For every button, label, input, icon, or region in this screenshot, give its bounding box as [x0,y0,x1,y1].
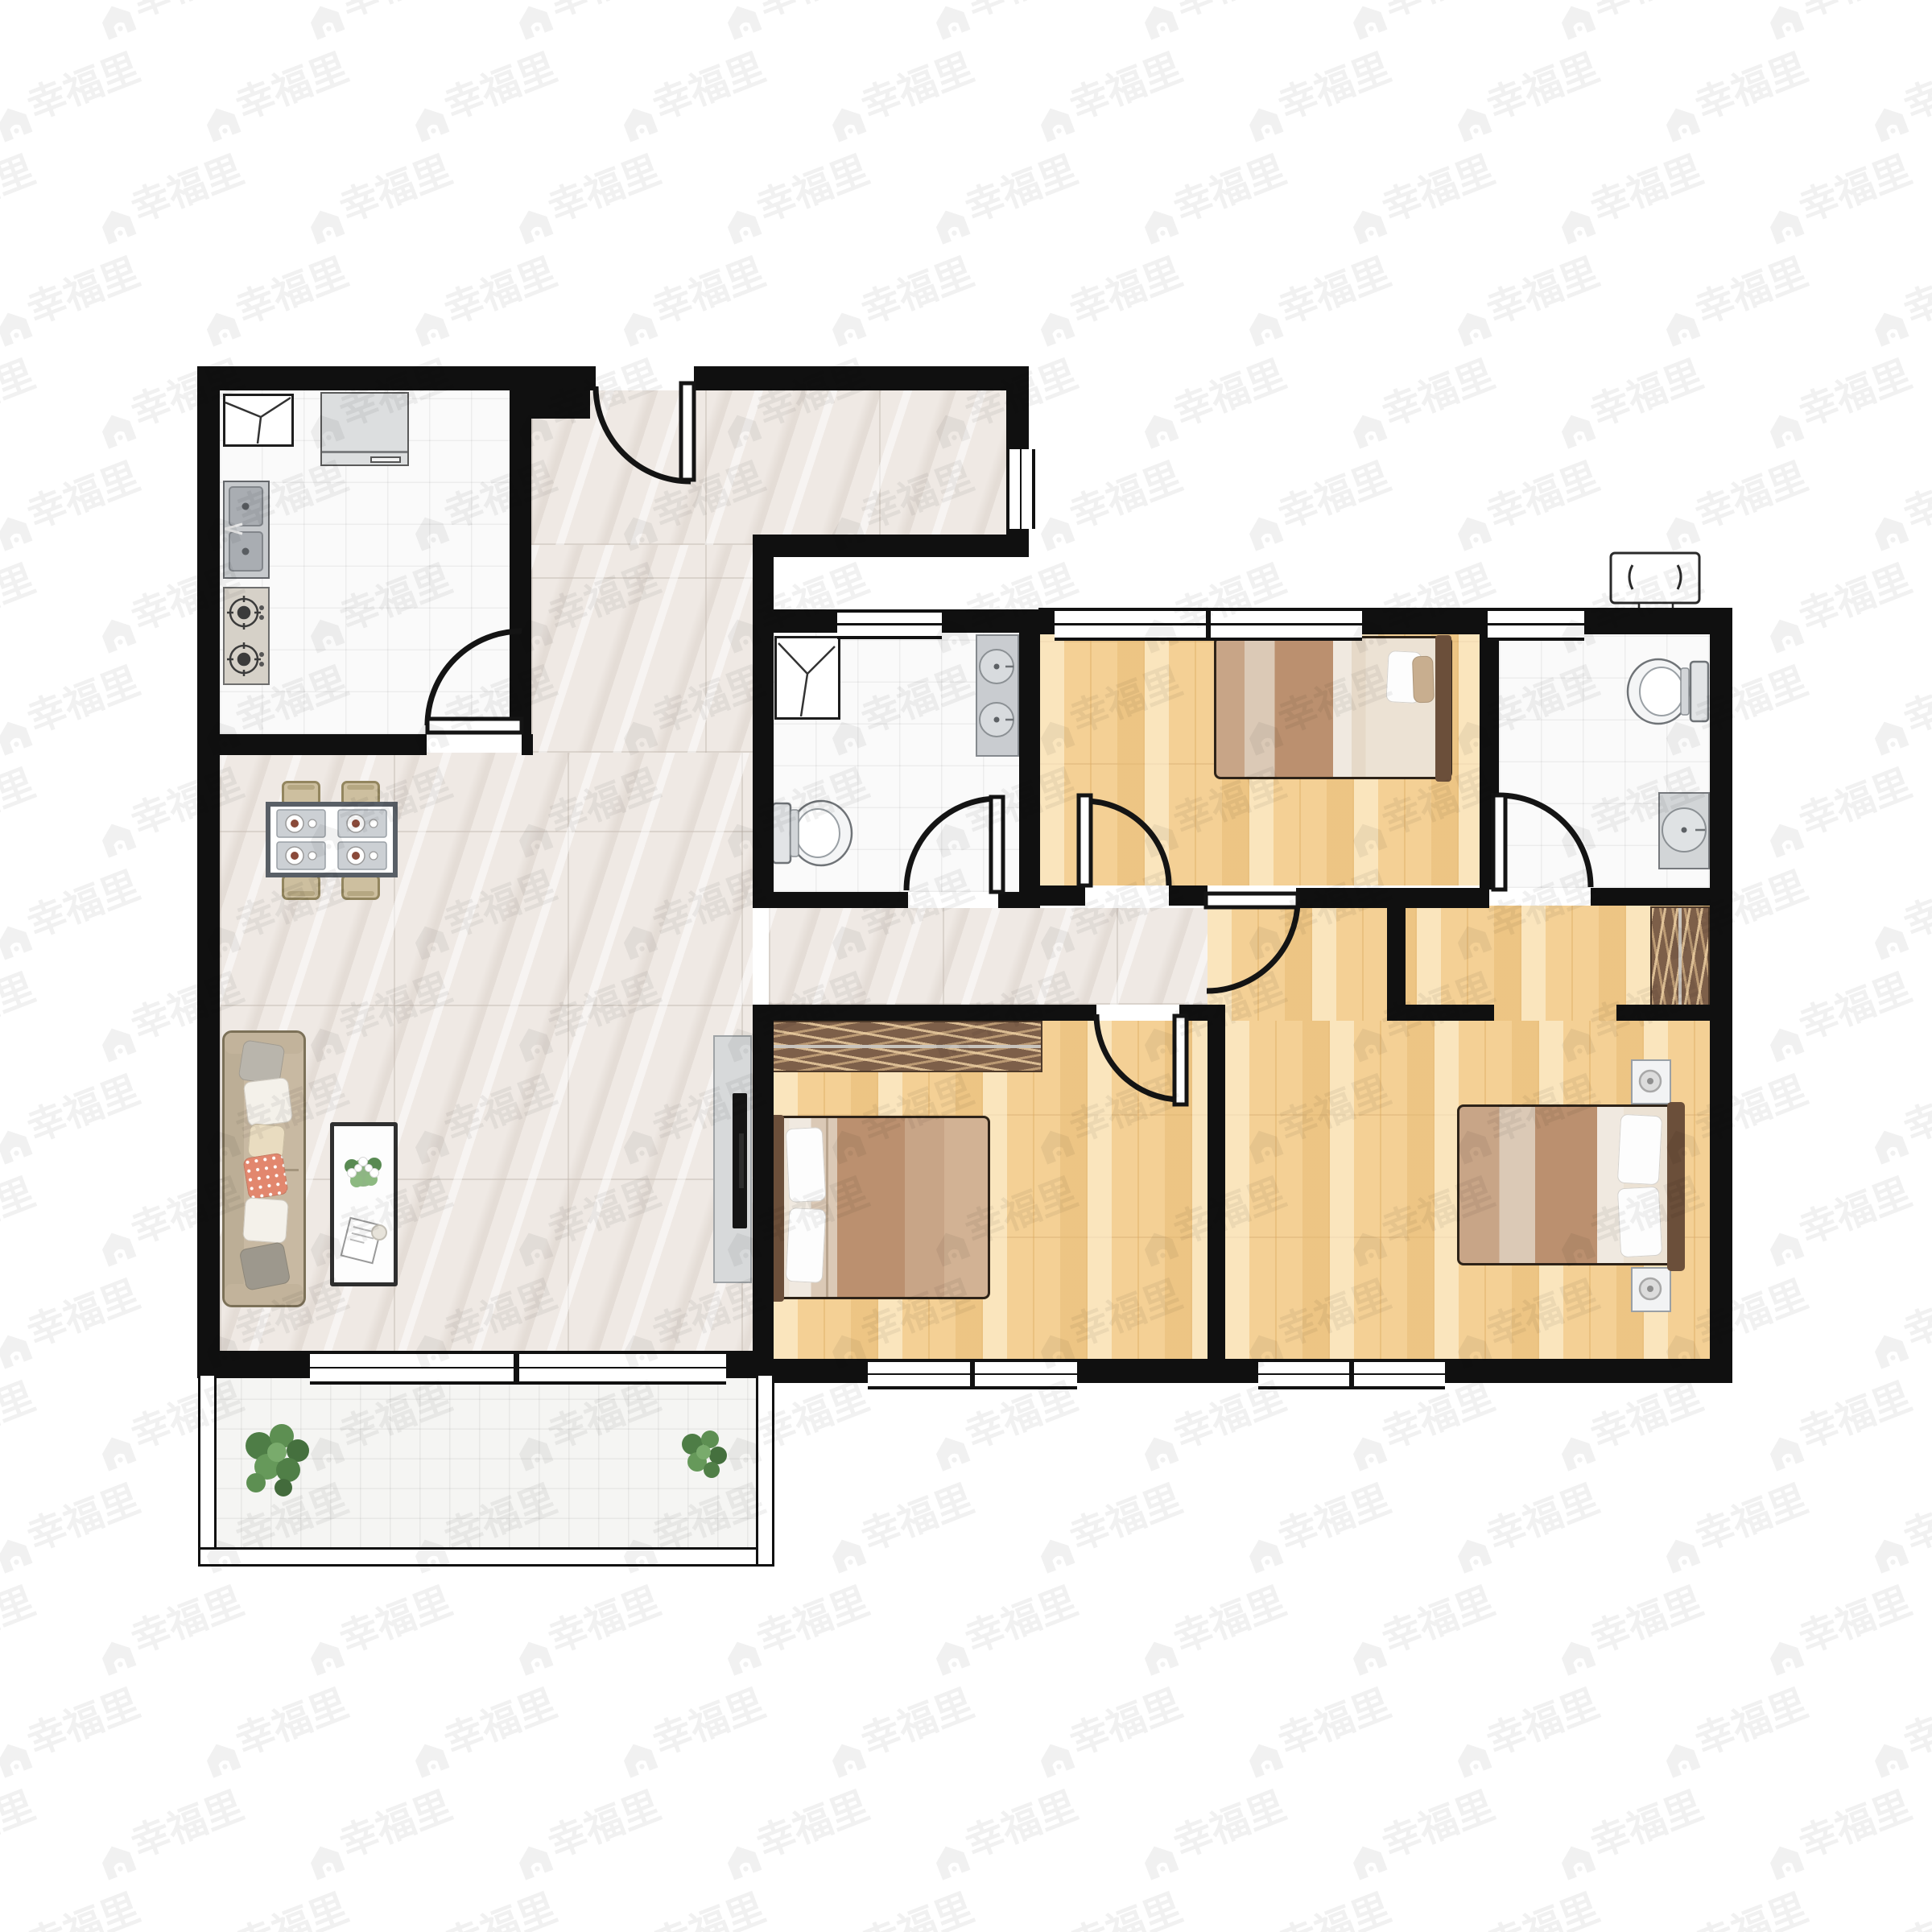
suite-door-leaf [1206,894,1298,907]
floor-plan-canvas: 幸福里 [0,0,1932,1932]
kitchen-door-arc [427,631,522,725]
bathroom-main-door-arc [906,799,997,890]
entry-door-arc [596,386,691,481]
bedroom-north-door-leaf [1079,795,1091,885]
bedroom-north-door-arc [1084,801,1169,885]
bedroom-middle-door-leaf [1174,1016,1187,1104]
bathroom-main-door-leaf [991,797,1003,892]
ensuite-door-leaf [1493,795,1505,890]
suite-door-arc [1207,900,1298,991]
bedroom-middle-door-arc [1096,1014,1180,1100]
kitchen-door-leaf [427,719,522,733]
entry-door-leaf [681,383,694,480]
door-layer [0,0,1932,1932]
ensuite-door-arc [1499,795,1591,887]
